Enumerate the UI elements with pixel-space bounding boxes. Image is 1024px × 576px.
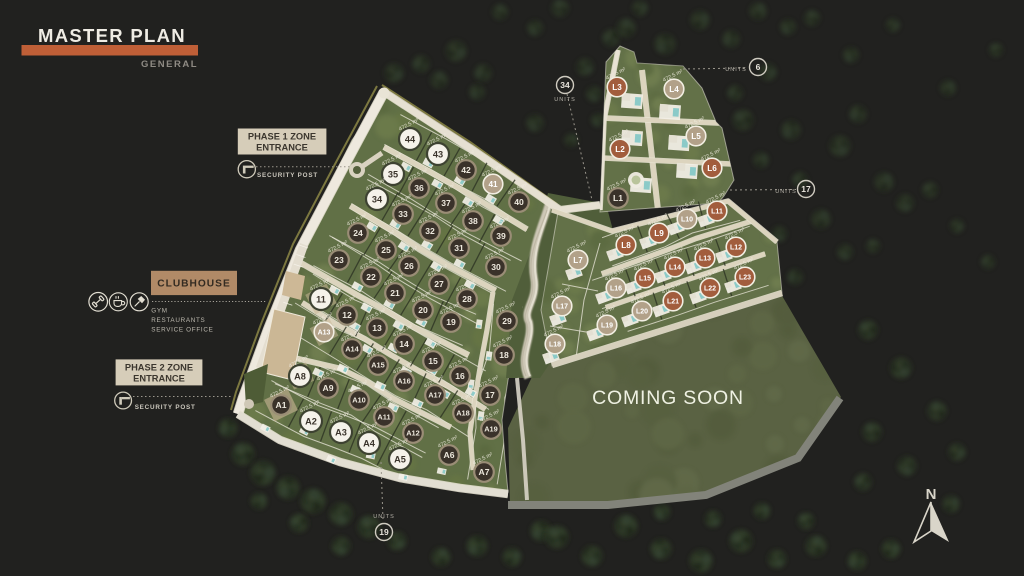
svg-text:11: 11 — [316, 294, 326, 304]
svg-text:L8: L8 — [621, 241, 631, 250]
svg-text:L20: L20 — [636, 309, 648, 316]
svg-text:27: 27 — [434, 279, 444, 289]
svg-text:A13: A13 — [318, 330, 331, 337]
svg-text:12: 12 — [342, 310, 352, 320]
svg-text:42: 42 — [461, 165, 471, 175]
svg-text:L11: L11 — [711, 209, 723, 216]
svg-text:24: 24 — [353, 228, 363, 238]
svg-text:L5: L5 — [691, 132, 701, 141]
svg-text:RESTAURANTS: RESTAURANTS — [151, 317, 205, 324]
svg-text:15: 15 — [428, 356, 438, 366]
svg-text:6: 6 — [756, 62, 761, 72]
svg-text:25: 25 — [381, 245, 391, 255]
svg-text:33: 33 — [398, 209, 408, 219]
svg-text:L13: L13 — [699, 256, 711, 263]
svg-text:A7: A7 — [479, 467, 490, 477]
svg-text:36: 36 — [414, 183, 424, 193]
svg-text:UNITS: UNITS — [725, 67, 747, 73]
svg-text:39: 39 — [496, 231, 506, 241]
svg-text:31: 31 — [454, 243, 464, 253]
svg-text:L17: L17 — [556, 304, 568, 311]
svg-text:L9: L9 — [654, 229, 664, 238]
svg-text:A14: A14 — [345, 345, 359, 354]
svg-text:32: 32 — [425, 226, 435, 236]
svg-text:L2: L2 — [615, 145, 625, 154]
svg-text:A18: A18 — [456, 409, 470, 418]
svg-text:GYM: GYM — [151, 307, 167, 314]
svg-text:A16: A16 — [397, 377, 411, 386]
svg-text:35: 35 — [388, 169, 398, 179]
svg-text:A3: A3 — [335, 427, 347, 437]
svg-text:29: 29 — [502, 316, 512, 326]
svg-text:SERVICE OFFICE: SERVICE OFFICE — [151, 326, 213, 333]
svg-text:L21: L21 — [667, 299, 679, 306]
svg-text:L3: L3 — [612, 83, 622, 92]
svg-text:UNITS: UNITS — [554, 97, 576, 103]
svg-text:A19: A19 — [484, 425, 498, 434]
svg-text:GENERAL: GENERAL — [141, 59, 198, 70]
svg-text:L19: L19 — [601, 323, 613, 330]
svg-text:19: 19 — [379, 527, 389, 537]
svg-text:20: 20 — [418, 305, 428, 315]
svg-text:A10: A10 — [352, 396, 366, 405]
svg-text:34: 34 — [560, 80, 570, 90]
svg-text:L22: L22 — [704, 286, 716, 293]
svg-text:L6: L6 — [707, 164, 717, 173]
svg-text:COMING SOON: COMING SOON — [592, 387, 744, 409]
svg-text:A12: A12 — [406, 429, 420, 438]
svg-text:41: 41 — [488, 180, 498, 189]
svg-text:L12: L12 — [730, 245, 742, 252]
svg-text:UNITS: UNITS — [775, 189, 797, 195]
svg-text:18: 18 — [499, 350, 509, 360]
svg-text:L7: L7 — [573, 256, 583, 265]
svg-text:SECURITY POST: SECURITY POST — [257, 172, 318, 179]
svg-text:L23: L23 — [739, 275, 751, 282]
svg-text:SECURITY POST: SECURITY POST — [135, 404, 196, 411]
svg-text:23: 23 — [334, 255, 344, 265]
svg-text:PHASE 1 ZONE: PHASE 1 ZONE — [248, 132, 316, 142]
svg-text:PHASE 2 ZONE: PHASE 2 ZONE — [125, 362, 193, 372]
svg-text:38: 38 — [468, 216, 478, 226]
svg-text:19: 19 — [446, 317, 456, 327]
svg-text:L15: L15 — [639, 276, 651, 283]
svg-text:MASTER PLAN: MASTER PLAN — [38, 25, 186, 46]
svg-text:A2: A2 — [305, 416, 317, 426]
svg-text:CLUBHOUSE: CLUBHOUSE — [157, 279, 231, 290]
svg-text:L16: L16 — [610, 286, 622, 293]
svg-text:A1: A1 — [276, 400, 287, 410]
svg-text:28: 28 — [462, 294, 472, 304]
svg-text:L10: L10 — [681, 217, 693, 224]
svg-text:43: 43 — [433, 149, 443, 159]
svg-text:N: N — [926, 486, 937, 503]
svg-text:A15: A15 — [371, 361, 385, 370]
svg-text:L18: L18 — [549, 342, 561, 349]
svg-text:17: 17 — [485, 390, 495, 400]
svg-text:37: 37 — [441, 198, 451, 208]
svg-text:L1: L1 — [613, 193, 623, 203]
svg-text:A17: A17 — [428, 391, 442, 400]
svg-text:16: 16 — [455, 371, 465, 381]
svg-text:A5: A5 — [394, 454, 406, 464]
svg-text:L4: L4 — [669, 85, 679, 94]
svg-text:17: 17 — [801, 184, 811, 194]
svg-text:ENTRANCE: ENTRANCE — [133, 373, 185, 383]
svg-text:34: 34 — [372, 194, 383, 204]
svg-text:A4: A4 — [363, 438, 376, 448]
svg-text:A6: A6 — [444, 450, 455, 460]
svg-text:21: 21 — [390, 288, 400, 298]
svg-text:A11: A11 — [377, 413, 390, 422]
svg-text:14: 14 — [399, 339, 409, 349]
svg-text:44: 44 — [405, 134, 416, 144]
svg-text:A8: A8 — [294, 371, 306, 381]
svg-text:13: 13 — [372, 323, 382, 333]
svg-text:30: 30 — [491, 262, 501, 272]
svg-text:40: 40 — [514, 197, 524, 207]
svg-text:26: 26 — [404, 261, 414, 271]
svg-text:22: 22 — [366, 272, 376, 282]
svg-text:A9: A9 — [323, 383, 334, 393]
svg-text:UNITS: UNITS — [373, 514, 395, 520]
svg-text:L14: L14 — [669, 265, 681, 272]
svg-text:ENTRANCE: ENTRANCE — [256, 143, 308, 153]
